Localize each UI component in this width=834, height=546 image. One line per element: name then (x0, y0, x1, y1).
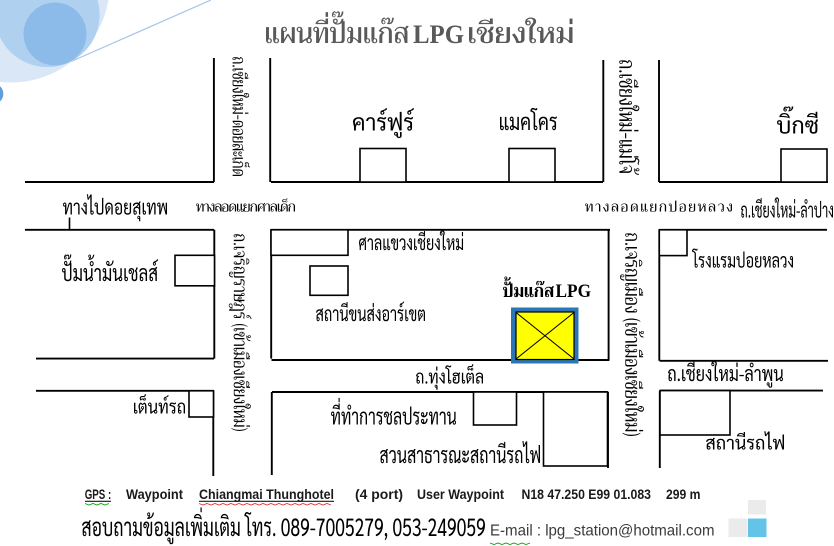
svg-text:LPG: LPG (556, 281, 592, 302)
svg-text:Chiangmai Thunghotel: Chiangmai Thunghotel (199, 486, 334, 502)
svg-text:299 m: 299 m (666, 486, 701, 502)
svg-text:(4 port): (4 port) (355, 486, 403, 502)
svg-text:Waypoint: Waypoint (126, 486, 183, 502)
svg-text:N18 47.250 E99 01.083: N18 47.250 E99 01.083 (522, 486, 652, 502)
svg-text:E-mail : lpg_station@hotmail.c: E-mail : lpg_station@hotmail.com (490, 523, 715, 540)
svg-text:User Waypoint: User Waypoint (417, 486, 504, 502)
svg-text:LPG: LPG (413, 20, 464, 49)
svg-text:GPS :: GPS : (85, 486, 112, 502)
